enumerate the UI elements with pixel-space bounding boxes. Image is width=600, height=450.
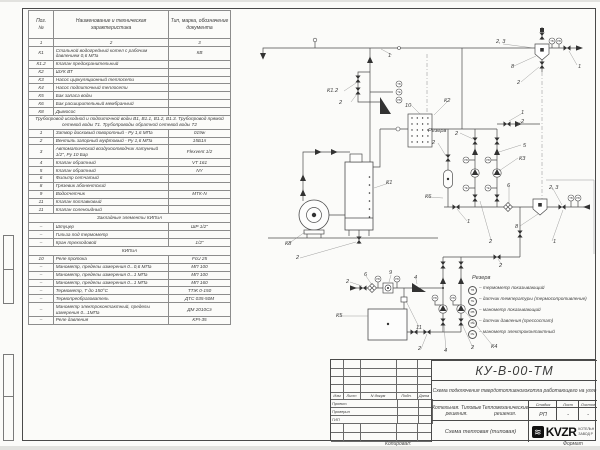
schematic-label: 2 xyxy=(345,279,350,285)
instrument-tag: ТВ xyxy=(397,82,401,86)
col-header-pos: Поз.№ xyxy=(29,11,54,39)
table-row: –ШтуцерШР 1/2" xyxy=(29,223,231,231)
title-block: ИзмЛистN докумПодп.ДатаПроект.ПроверилГИ… xyxy=(330,359,596,441)
mud-separator-supply xyxy=(535,27,559,72)
schematic-label: 4 xyxy=(414,275,417,281)
schematic-label: 1 xyxy=(467,219,470,225)
table-row: 11Клапан поплавковый xyxy=(29,198,231,206)
table-row: К4Насос подпиточный теплосети xyxy=(29,84,231,92)
instrument-tag: РВ xyxy=(451,296,455,300)
schematic-label: 1 xyxy=(578,64,581,70)
table-row: –Манометр, пределы измерения 0...0,6 МПа… xyxy=(29,263,231,271)
table-row: 4Клапан обратныйVT 161 xyxy=(29,159,231,167)
instrument-tag: РВ xyxy=(576,196,580,200)
table-row: –Термометр, Т до 150°СТТЖ 0-150 xyxy=(29,287,231,295)
instrument-tag: ТВ xyxy=(550,39,554,43)
object-name: Котельная. Типовые решения.Тепломеханиче… xyxy=(431,400,529,421)
schematic-label: 8 xyxy=(515,224,519,230)
table-row: К2ШУК ВТ xyxy=(29,68,231,76)
legend-item: ТВ– термометр показывающий xyxy=(468,285,596,295)
table-row: К5Бак запаса воды xyxy=(29,92,231,100)
table-row: К1Стальной водогрейный котел с рабочим д… xyxy=(29,47,231,61)
table-row: –Манометр электроконтактный, пределы изм… xyxy=(29,303,231,317)
smoke-exhauster-symbol xyxy=(299,149,350,238)
instrument-tag: РВ xyxy=(464,158,468,162)
drawing-sheet: Поз.№ Наименование и техническая характе… xyxy=(0,2,600,446)
circulation-pumps-k3 xyxy=(469,129,501,207)
instrument-tag: ТЕ xyxy=(464,186,468,190)
col-header-type: Тип, марка, обозначение документа xyxy=(169,11,231,39)
expansion-tank-k6 xyxy=(444,129,453,207)
schematic-label: 9 xyxy=(389,270,392,276)
safety-valve-k12 xyxy=(355,72,391,114)
table-row: 1Затвор дисковый поворотный - Ру 1,6 МПа… xyxy=(29,129,231,137)
instrument-tag: РВ xyxy=(433,296,437,300)
table-row: Закладные элементы КИПиА xyxy=(29,214,231,223)
margin-stamp-box xyxy=(3,396,14,441)
schematic-label: Резерв xyxy=(428,128,446,134)
table-row: –Манометр, пределы измерения 0...1 МПаМП… xyxy=(29,271,231,279)
schematic-label: 2 xyxy=(431,140,436,146)
table-row: –ТермопреобразовательДТС 035-50М xyxy=(29,295,231,303)
table-row: К6Бак расширительный мембранный xyxy=(29,100,231,108)
stage-value: РП xyxy=(528,407,557,421)
company-name: КОТЕЛЬНЗАВОД Р xyxy=(578,427,594,436)
instrument-legend: ТВ– термометр показывающийТЕ– датчик тем… xyxy=(468,285,596,340)
boiler-symbol xyxy=(345,154,373,244)
schematic-label: 2 xyxy=(454,131,459,137)
signature-empty-cell xyxy=(417,432,432,442)
copied-label: Копировал: xyxy=(385,441,411,447)
table-row: 3Автоматический воздухоотводчик латунный… xyxy=(29,145,231,159)
schematic-label: 6 xyxy=(364,272,368,278)
table-row: 9ВодосчетчикМТК-N xyxy=(29,190,231,198)
schematic-label: К1.2 xyxy=(327,88,339,94)
legend-text: – датчик давления (прессостат) xyxy=(479,318,553,323)
legend-symbol-icon: ТЕ xyxy=(468,297,477,306)
kvzr-logo-text: KVZR xyxy=(546,425,577,439)
legend-symbol-icon: ТВ xyxy=(468,286,477,295)
schematic-label: К8 xyxy=(285,241,292,247)
schematic-label: 4 xyxy=(444,348,447,352)
table-row: 123 xyxy=(29,39,231,47)
schematic-label: К3 xyxy=(519,156,526,162)
schematic-label: 2, 3 xyxy=(495,39,506,45)
legend-item: РВ– манометр показывающий xyxy=(468,307,596,317)
table-row: –Манометр, пределы измерения 0...1 МПаМП… xyxy=(29,279,231,287)
drawing-subtitle: Схема подключения твердотопливногокотла … xyxy=(431,380,597,401)
water-meter-symbol xyxy=(383,283,393,293)
schematic-label: 2 xyxy=(417,346,422,352)
schematic-label: 2 xyxy=(516,80,521,86)
schematic-label: 5 xyxy=(523,143,527,149)
instrument-tag: ТВ xyxy=(569,196,573,200)
margin-stamp-box xyxy=(3,235,14,270)
schematic-label: 2, 3 xyxy=(548,185,559,191)
sheet-name: Схема тепловая (типовая) xyxy=(431,420,529,442)
sheet-value: - xyxy=(556,407,579,421)
schematic-label: Резерв xyxy=(472,275,490,281)
table-row: 2Вентиль запорный муфтовый - Ру 1,6 МПа1… xyxy=(29,137,231,145)
sheets-value: - xyxy=(578,407,597,421)
drawing-page: Поз.№ Наименование и техническая характе… xyxy=(0,0,600,450)
legend-text: – манометр электроконтактный xyxy=(479,329,555,334)
schematic-label: 2 xyxy=(470,345,475,351)
legend-text: – датчик температуры (термосопротивление… xyxy=(479,296,587,301)
schematic-label: 2 xyxy=(295,255,300,261)
schematic-label: 10 xyxy=(405,103,412,109)
instrument-tags: ТВРВТВТЕРВРВРВТЕТЕТВРВРВРВРВРВ xyxy=(375,38,581,301)
instrument-tag: РВ xyxy=(397,98,401,102)
legend-symbol-icon: РЕ xyxy=(468,319,477,328)
schematic-label: К5 xyxy=(336,313,343,319)
parts-table: Поз.№ Наименование и техническая характе… xyxy=(28,10,231,325)
schematic-label: 2 xyxy=(338,100,343,106)
format-label: Формат xyxy=(563,441,583,447)
col-header-name: Наименование и техническая характеристик… xyxy=(54,11,169,39)
table-row: Трубопровод исходной и подпиточной воды … xyxy=(29,115,231,129)
doc-number: КУ-В-00-ТМ xyxy=(431,360,597,381)
schematic-label: 1 xyxy=(388,53,391,59)
table-row: К8Дымосос xyxy=(29,108,231,116)
kvzr-logo-icon: ≋ xyxy=(532,426,544,438)
schematic-label: К6 xyxy=(425,194,432,200)
schematic-label: 6 xyxy=(507,183,511,189)
table-row: 6Фильтр сетчатый xyxy=(29,174,231,182)
company-logo: ≋ KVZR КОТЕЛЬНЗАВОД Р xyxy=(528,420,597,442)
instrument-tag: РВ xyxy=(395,277,399,281)
table-row: 5Клапан обратныйNY xyxy=(29,167,231,175)
legend-symbol-icon: РВ xyxy=(468,308,477,317)
table-row: 11Клапан соленоидный xyxy=(29,206,231,214)
schematic-label: К1 xyxy=(386,180,392,186)
schematic-label: К4 xyxy=(491,344,497,350)
instrument-tag: РВ xyxy=(376,277,380,281)
schematic-label: 2 xyxy=(498,263,503,269)
legend-item: РЕ– датчик давления (прессостат) xyxy=(468,318,596,328)
schematic-label: 8 xyxy=(511,64,515,70)
legend-text: – манометр показывающий xyxy=(479,307,541,312)
instrument-tag: ТЕ xyxy=(397,90,401,94)
schematic-label: 1 xyxy=(553,239,556,245)
table-row: КИПиА xyxy=(29,246,231,255)
margin-stamp-box xyxy=(3,269,14,304)
instrument-tag: РВ xyxy=(557,39,561,43)
schematic-label: 2 xyxy=(488,239,493,245)
legend-text: – термометр показывающий xyxy=(479,285,545,290)
table-row: К3Насос циркуляционный теплосети xyxy=(29,76,231,84)
instrument-tag: РВ xyxy=(486,158,490,162)
storage-tank-k5 xyxy=(368,309,461,340)
feedwater-line xyxy=(350,282,443,309)
legend-item: ТЕ– датчик температуры (термосопротивлен… xyxy=(468,296,596,306)
margin-stamp-box xyxy=(3,354,14,397)
signature-empty-cell xyxy=(343,432,361,442)
table-row: –Реле давленияKPI-35 xyxy=(29,316,231,324)
schematic-label: 11 xyxy=(416,325,422,331)
table-row: –Гильза под термометр xyxy=(29,231,231,239)
signature-grid: ИзмЛистN докумПодп.ДатаПроект.ПроверилГИ… xyxy=(331,360,431,441)
legend-symbol-icon: РЕ xyxy=(468,330,477,339)
table-row: 8Грязевик абонентский xyxy=(29,182,231,190)
table-row: К1.2Клапан предохранительный xyxy=(29,60,231,68)
instrument-tag: ТЕ xyxy=(486,186,490,190)
schematic-label: К2 xyxy=(444,98,451,104)
schematic-label: 1 xyxy=(521,110,524,116)
table-row: 10Реле протокаFcU 25 xyxy=(29,255,231,263)
table-row: –Кран трехходовой1/2" xyxy=(29,239,231,247)
legend-item: РЕ– манометр электроконтактный xyxy=(468,329,596,339)
